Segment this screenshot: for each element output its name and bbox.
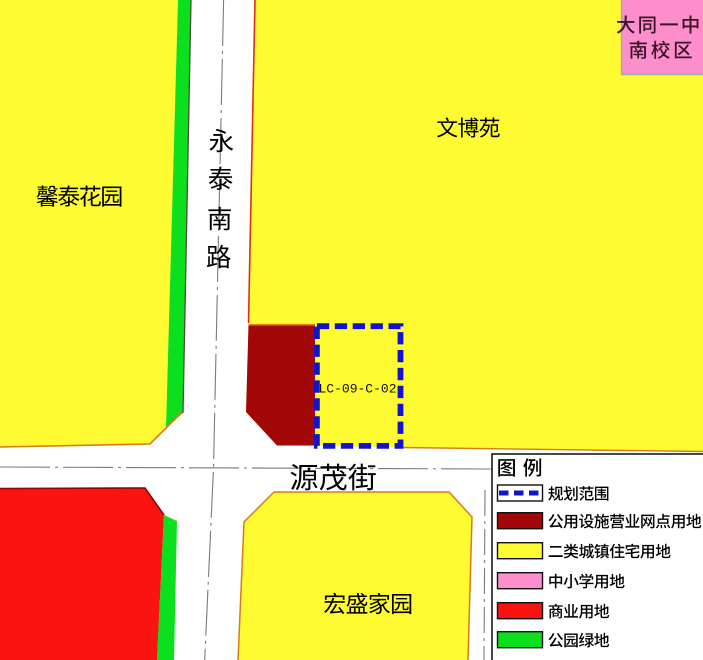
svg-text:LC-09-C-02: LC-09-C-02: [319, 382, 397, 397]
